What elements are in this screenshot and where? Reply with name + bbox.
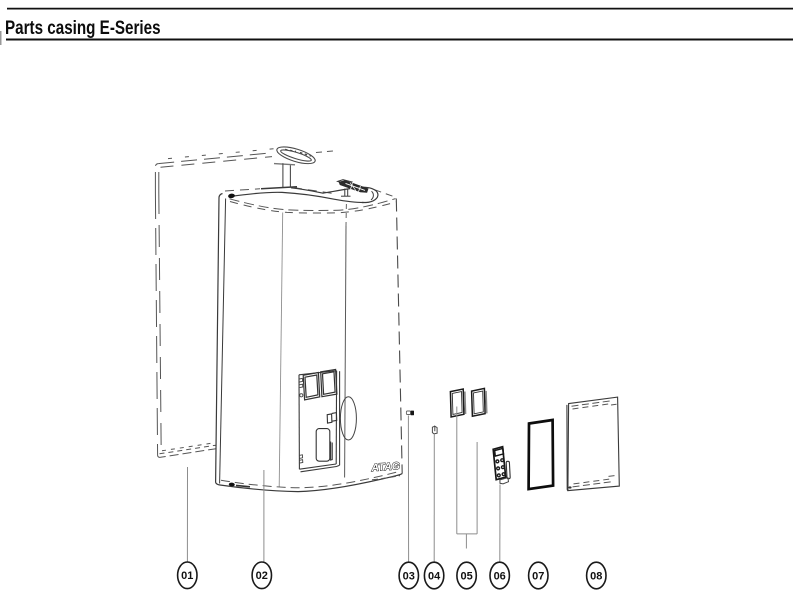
svg-text:ATAG: ATAG xyxy=(370,461,400,474)
svg-text:02: 02 xyxy=(256,570,268,582)
svg-text:08: 08 xyxy=(590,570,602,582)
svg-text:04: 04 xyxy=(428,570,441,582)
svg-text:06: 06 xyxy=(494,570,506,582)
svg-text:01: 01 xyxy=(181,570,193,582)
svg-text:03: 03 xyxy=(403,570,415,582)
svg-text:07: 07 xyxy=(532,570,544,582)
svg-text:05: 05 xyxy=(460,570,472,582)
